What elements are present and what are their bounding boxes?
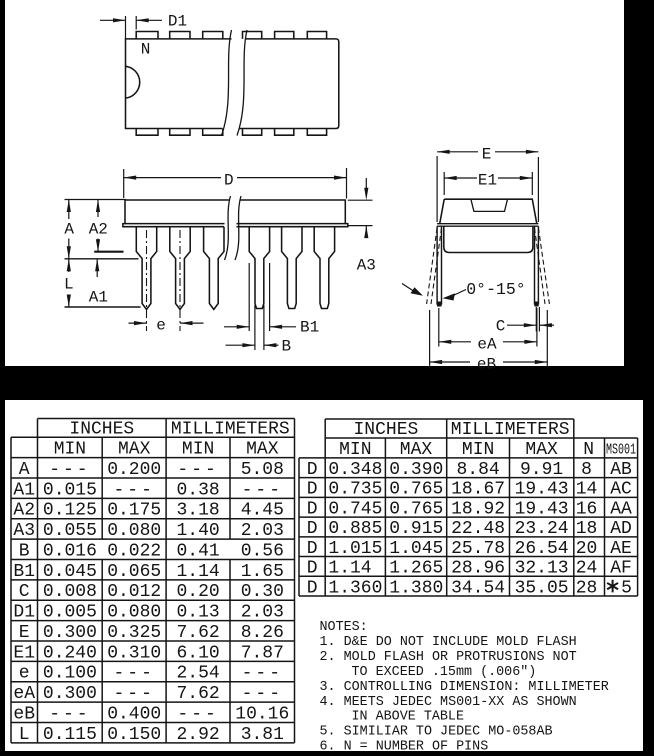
svg-text:0.100: 0.100 <box>43 664 97 684</box>
svg-text:---: --- <box>242 684 283 704</box>
svg-text:0.20: 0.20 <box>176 582 219 602</box>
svg-text:C: C <box>19 582 30 602</box>
svg-text:0.240: 0.240 <box>43 643 97 663</box>
svg-text:0.008: 0.008 <box>43 582 97 602</box>
svg-text:eA: eA <box>477 335 497 353</box>
svg-text:1. D&E DO NOT INCLUDE MOLD FLA: 1. D&E DO NOT INCLUDE MOLD FLASH <box>320 635 577 650</box>
svg-text:6. N = NUMBER OF PINS: 6. N = NUMBER OF PINS <box>320 740 489 755</box>
svg-text:0.005: 0.005 <box>43 603 97 623</box>
svg-text:AF: AF <box>610 559 632 579</box>
svg-text:MS001: MS001 <box>606 442 636 459</box>
svg-text:D: D <box>307 480 318 500</box>
svg-text:4. MEETS JEDEC MS001-XX AS SHO: 4. MEETS JEDEC MS001-XX AS SHOWN <box>320 695 577 710</box>
svg-text:B1: B1 <box>13 562 35 582</box>
svg-text:35.05: 35.05 <box>515 578 569 598</box>
svg-text:TO EXCEED .15mm (.006"): TO EXCEED .15mm (.006") <box>352 665 537 680</box>
svg-text:MAX: MAX <box>400 440 433 460</box>
svg-text:MAX: MAX <box>246 440 279 460</box>
svg-text:AC: AC <box>610 480 632 500</box>
svg-text:---: --- <box>242 664 283 684</box>
svg-text:B: B <box>19 541 30 561</box>
svg-text:0.765: 0.765 <box>389 480 443 500</box>
svg-text:4.45: 4.45 <box>241 501 284 521</box>
svg-text:INCHES: INCHES <box>353 420 418 440</box>
svg-text:6.10: 6.10 <box>176 643 219 663</box>
svg-text:0.745: 0.745 <box>328 499 382 519</box>
svg-text:24: 24 <box>576 559 598 579</box>
svg-text:B: B <box>282 338 292 356</box>
svg-text:---: --- <box>242 480 283 500</box>
svg-text:D: D <box>307 578 318 598</box>
svg-text:14: 14 <box>576 480 598 500</box>
svg-text:N: N <box>583 440 594 460</box>
svg-text:5.08: 5.08 <box>241 460 284 480</box>
svg-text:E1: E1 <box>478 172 497 190</box>
svg-text:0.885: 0.885 <box>328 519 382 539</box>
svg-text:2.92: 2.92 <box>176 725 219 745</box>
svg-text:0.015: 0.015 <box>43 480 97 500</box>
svg-text:MILLIMETERS: MILLIMETERS <box>451 420 570 440</box>
svg-text:A: A <box>64 221 74 239</box>
svg-text:0.41: 0.41 <box>176 541 219 561</box>
svg-text:e: e <box>19 664 30 684</box>
svg-text:2.03: 2.03 <box>241 521 284 541</box>
svg-text:1.65: 1.65 <box>241 562 284 582</box>
svg-text:0.38: 0.38 <box>176 480 219 500</box>
svg-text:eA: eA <box>13 684 35 704</box>
svg-text:e: e <box>156 317 166 335</box>
svg-text:20: 20 <box>576 539 598 559</box>
svg-text:D: D <box>307 539 318 559</box>
svg-text:7.87: 7.87 <box>241 643 284 663</box>
svg-text:8.26: 8.26 <box>241 623 284 643</box>
svg-text:0.055: 0.055 <box>43 521 97 541</box>
svg-text:8.84: 8.84 <box>456 460 499 480</box>
svg-text:eB: eB <box>477 356 496 374</box>
svg-text:0.012: 0.012 <box>107 582 161 602</box>
svg-text:D1: D1 <box>13 603 35 623</box>
svg-text:---: --- <box>113 684 154 704</box>
svg-text:1.14: 1.14 <box>328 559 371 579</box>
svg-text:E1: E1 <box>13 643 35 663</box>
svg-text:0.390: 0.390 <box>389 460 443 480</box>
svg-text:28: 28 <box>576 578 598 598</box>
svg-text:32.13: 32.13 <box>515 559 569 579</box>
svg-text:7.62: 7.62 <box>176 623 219 643</box>
svg-text:10.16: 10.16 <box>235 704 289 724</box>
svg-text:---: --- <box>113 664 154 684</box>
svg-text:0.045: 0.045 <box>43 562 97 582</box>
svg-text:E: E <box>482 145 492 163</box>
svg-text:E: E <box>19 623 30 643</box>
svg-text:0.13: 0.13 <box>176 603 219 623</box>
svg-text:L: L <box>64 276 74 294</box>
svg-text:0.200: 0.200 <box>107 460 161 480</box>
svg-text:19.43: 19.43 <box>515 499 569 519</box>
svg-text:34.54: 34.54 <box>451 578 505 598</box>
svg-text:L: L <box>19 725 30 745</box>
svg-text:C: C <box>496 317 506 335</box>
svg-text:2.54: 2.54 <box>176 664 219 684</box>
svg-text:1.14: 1.14 <box>176 562 219 582</box>
svg-text:0.915: 0.915 <box>389 519 443 539</box>
svg-text:0.400: 0.400 <box>107 704 161 724</box>
svg-text:0.348: 0.348 <box>328 460 382 480</box>
svg-text:0.080: 0.080 <box>107 603 161 623</box>
svg-text:0.125: 0.125 <box>43 501 97 521</box>
svg-text:eB: eB <box>13 704 35 724</box>
svg-text:3. CONTROLLING DIMENSION: MILL: 3. CONTROLLING DIMENSION: MILLIMETER <box>320 680 609 695</box>
svg-text:1.265: 1.265 <box>389 559 443 579</box>
svg-text:0.150: 0.150 <box>107 725 161 745</box>
svg-text:A2: A2 <box>89 221 108 239</box>
svg-text:5: 5 <box>621 578 632 598</box>
svg-text:MILLIMETERS: MILLIMETERS <box>171 420 290 440</box>
svg-text:---: --- <box>49 460 90 480</box>
svg-text:18.92: 18.92 <box>451 499 505 519</box>
svg-text:0.300: 0.300 <box>43 623 97 643</box>
svg-text:MIN: MIN <box>54 440 86 460</box>
svg-text:---: --- <box>113 480 154 500</box>
svg-text:A3: A3 <box>13 521 35 541</box>
svg-text:AA: AA <box>610 499 632 519</box>
svg-text:1.380: 1.380 <box>389 578 443 598</box>
svg-text:0.016: 0.016 <box>43 541 97 561</box>
svg-text:1.015: 1.015 <box>328 539 382 559</box>
svg-text:D: D <box>307 460 318 480</box>
svg-text:MIN: MIN <box>462 440 494 460</box>
svg-text:3.81: 3.81 <box>241 725 284 745</box>
svg-text:0.325: 0.325 <box>107 623 161 643</box>
svg-text:0.300: 0.300 <box>43 684 97 704</box>
svg-text:22.48: 22.48 <box>451 519 505 539</box>
svg-text:B1: B1 <box>300 319 319 337</box>
svg-text:---: --- <box>177 460 218 480</box>
svg-text:25.78: 25.78 <box>451 539 505 559</box>
svg-text:18.67: 18.67 <box>451 480 505 500</box>
svg-text:D: D <box>307 499 318 519</box>
svg-text:19.43: 19.43 <box>515 480 569 500</box>
svg-text:0.310: 0.310 <box>107 643 161 663</box>
svg-text:1.360: 1.360 <box>328 578 382 598</box>
svg-text:MIN: MIN <box>339 440 371 460</box>
svg-text:IN ABOVE TABLE: IN ABOVE TABLE <box>352 710 465 725</box>
svg-text:NOTES:: NOTES: <box>320 620 368 635</box>
svg-text:0.080: 0.080 <box>107 521 161 541</box>
svg-text:INCHES: INCHES <box>69 420 134 440</box>
svg-text:0.115: 0.115 <box>43 725 97 745</box>
svg-text:MAX: MAX <box>118 440 151 460</box>
svg-text:---: --- <box>177 704 218 724</box>
svg-text:A: A <box>19 460 30 480</box>
svg-text:28.96: 28.96 <box>451 559 505 579</box>
svg-text:D: D <box>307 519 318 539</box>
svg-text:0.30: 0.30 <box>241 582 284 602</box>
svg-text:0.022: 0.022 <box>107 541 161 561</box>
svg-text:9.91: 9.91 <box>520 460 563 480</box>
svg-text:MIN: MIN <box>182 440 214 460</box>
svg-text:26.54: 26.54 <box>515 539 569 559</box>
svg-text:A1: A1 <box>13 480 35 500</box>
svg-text:0.175: 0.175 <box>107 501 161 521</box>
svg-text:A2: A2 <box>13 501 35 521</box>
svg-text:AE: AE <box>610 539 632 559</box>
svg-text:16: 16 <box>576 499 598 519</box>
svg-text:AD: AD <box>610 519 632 539</box>
svg-text:A1: A1 <box>89 289 108 307</box>
svg-text:D: D <box>224 171 234 189</box>
svg-text:2. MOLD FLASH OR PROTRUSIONS N: 2. MOLD FLASH OR PROTRUSIONS NOT <box>320 650 577 665</box>
svg-text:0.065: 0.065 <box>107 562 161 582</box>
svg-text:D: D <box>307 559 318 579</box>
svg-text:18: 18 <box>576 519 598 539</box>
svg-text:0.735: 0.735 <box>328 480 382 500</box>
svg-text:A3: A3 <box>357 257 376 275</box>
svg-text:1.40: 1.40 <box>176 521 219 541</box>
svg-text:AB: AB <box>610 460 632 480</box>
svg-text:0°-15°: 0°-15° <box>466 280 525 299</box>
svg-text:7.62: 7.62 <box>176 684 219 704</box>
svg-text:0.765: 0.765 <box>389 499 443 519</box>
svg-text:---: --- <box>49 704 90 724</box>
svg-text:2.03: 2.03 <box>241 603 284 623</box>
svg-text:0.56: 0.56 <box>241 541 284 561</box>
svg-text:D1: D1 <box>168 13 187 31</box>
svg-text:23.24: 23.24 <box>515 519 569 539</box>
svg-text:8: 8 <box>581 460 592 480</box>
svg-text:N: N <box>141 41 151 59</box>
svg-text:3.18: 3.18 <box>176 501 219 521</box>
svg-text:1.045: 1.045 <box>389 539 443 559</box>
svg-text:MAX: MAX <box>525 440 558 460</box>
svg-text:5. SIMILIAR TO JEDEC MO-058AB: 5. SIMILIAR TO JEDEC MO-058AB <box>320 725 553 740</box>
